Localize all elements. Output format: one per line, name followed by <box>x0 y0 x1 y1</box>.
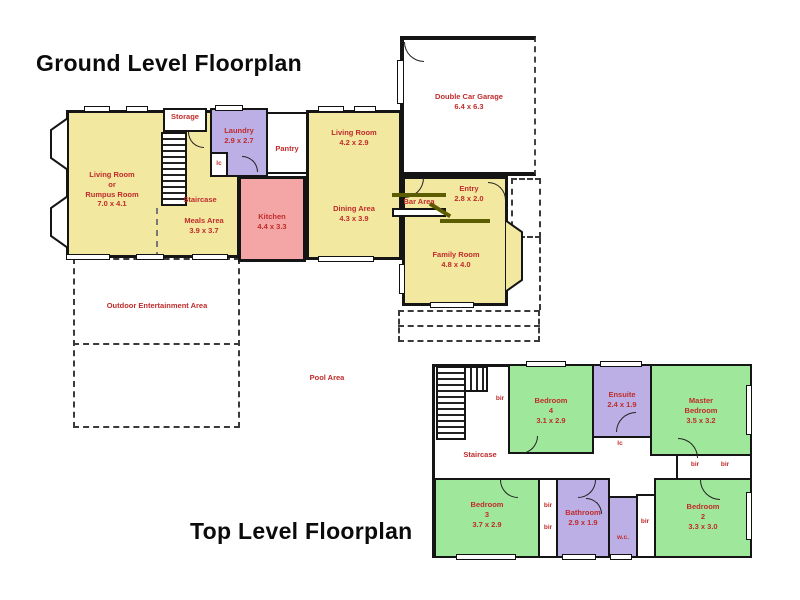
laundry-dims: 2.9 x 2.7 <box>210 136 268 146</box>
ground-level-title: Ground Level Floorplan <box>36 50 356 77</box>
outdoor-divider-line <box>73 343 240 345</box>
bay-window-right <box>505 218 529 296</box>
bedroom2-label: Bedroom 2 3.3 x 3.0 <box>654 502 752 531</box>
ground-lc-text: lc <box>209 160 229 168</box>
master-line2: Bedroom <box>650 406 752 416</box>
rumpus-line3: Rumpus Room <box>66 190 158 200</box>
window <box>136 254 164 260</box>
bedroom3-label: Bedroom 3 3.7 x 2.9 <box>434 500 540 529</box>
top-lc-label: lc <box>608 440 632 448</box>
rear-verandah-line <box>398 325 540 327</box>
window <box>610 554 632 560</box>
ensuite-dims: 2.4 x 1.9 <box>592 400 652 410</box>
living-room-label: Living Room 4.2 x 2.9 <box>306 128 402 148</box>
storage-label: Storage <box>163 112 207 122</box>
living-name: Living Room <box>306 128 402 138</box>
outdoor-area-label: Outdoor Entertainment Area <box>80 301 234 311</box>
pool-name: Pool Area <box>297 373 357 383</box>
meals-name: Meals Area <box>168 216 240 226</box>
window <box>456 554 516 560</box>
bedroom2-line1: Bedroom <box>654 502 752 512</box>
pantry-label: Pantry <box>266 144 308 154</box>
bar-counter-edge <box>440 219 490 223</box>
bathroom-name: Bathroom <box>556 508 610 518</box>
living-dims: 4.2 x 2.9 <box>306 138 402 148</box>
bedroom4-line1: Bedroom <box>508 396 594 406</box>
bedroom4-label: Bedroom 4 3.1 x 2.9 <box>508 396 594 425</box>
window <box>215 105 243 111</box>
bar-area-label: Bar Area <box>392 197 446 207</box>
window <box>600 361 642 367</box>
top-lc-text: lc <box>608 440 632 448</box>
top-staircase-label: Staircase <box>450 450 510 460</box>
bir-label: bir <box>710 461 740 469</box>
bedroom3-robe-strip <box>538 478 558 558</box>
ground-staircase-text: Staircase <box>168 195 232 205</box>
bir-label: bir <box>490 395 510 403</box>
top-staircase-landing <box>464 366 488 392</box>
window <box>84 106 110 112</box>
meals-area-label: Meals Area 3.9 x 3.7 <box>168 216 240 236</box>
bir-text: bir <box>680 461 710 469</box>
bir-label: bir <box>680 461 710 469</box>
rumpus-room-label: Living Room or Rumpus Room 7.0 x 4.1 <box>66 170 158 209</box>
window <box>397 60 404 104</box>
top-staircase-text: Staircase <box>450 450 510 460</box>
bay-window-left <box>46 114 68 254</box>
bir-text: bir <box>710 461 740 469</box>
side-boundary-line <box>539 238 541 310</box>
window <box>526 361 566 367</box>
rumpus-line2: or <box>66 180 158 190</box>
bathroom-label: Bathroom 2.9 x 1.9 <box>556 508 610 528</box>
ensuite-label: Ensuite 2.4 x 1.9 <box>592 390 652 410</box>
bedroom2-line2: 2 <box>654 512 752 522</box>
pool-area-label: Pool Area <box>297 373 357 383</box>
dining-area-label: Dining Area 4.3 x 3.9 <box>310 204 398 224</box>
window <box>399 264 405 294</box>
window <box>66 254 110 260</box>
ensuite-name: Ensuite <box>592 390 652 400</box>
rumpus-line1: Living Room <box>66 170 158 180</box>
dining-name: Dining Area <box>310 204 398 214</box>
bathroom-dims: 2.9 x 1.9 <box>556 518 610 528</box>
meals-dims: 3.9 x 3.7 <box>168 226 240 236</box>
wc-label: w.c. <box>608 534 638 542</box>
rumpus-dims: 7.0 x 4.1 <box>66 199 158 209</box>
family-room-label: Family Room 4.8 x 4.0 <box>408 250 504 270</box>
family-dims: 4.8 x 4.0 <box>408 260 504 270</box>
top-level-title: Top Level Floorplan <box>190 518 430 545</box>
wc-text: w.c. <box>608 534 638 542</box>
bar-name: Bar Area <box>392 197 446 207</box>
laundry-name: Laundry <box>210 126 268 136</box>
bedroom3-line1: Bedroom <box>434 500 540 510</box>
ground-lc-label: lc <box>209 160 229 168</box>
rumpus-meals-divider <box>156 208 158 258</box>
window <box>318 106 344 112</box>
garage-label: Double Car Garage 6.4 x 6.3 <box>416 92 522 112</box>
window <box>430 302 474 308</box>
master-dims: 3.5 x 3.2 <box>650 416 752 426</box>
window <box>126 106 148 112</box>
bedroom4-line2: 4 <box>508 406 594 416</box>
family-name: Family Room <box>408 250 504 260</box>
floorplan-canvas: Ground Level Floorplan <box>0 0 800 600</box>
entry-label: Entry 2.8 x 2.0 <box>440 184 498 204</box>
entry-dims: 2.8 x 2.0 <box>440 194 498 204</box>
garage-dims: 6.4 x 6.3 <box>416 102 522 112</box>
wc-room <box>608 496 638 558</box>
window <box>192 254 228 260</box>
ground-staircase-label: Staircase <box>168 195 232 205</box>
bedroom3-line2: 3 <box>434 510 540 520</box>
bedroom2-dims: 3.3 x 3.0 <box>654 522 752 532</box>
bir-text: bir <box>490 395 510 403</box>
outdoor-name: Outdoor Entertainment Area <box>80 301 234 311</box>
laundry-label: Laundry 2.9 x 2.7 <box>210 126 268 146</box>
pantry-name: Pantry <box>266 144 308 154</box>
garage-name: Double Car Garage <box>416 92 522 102</box>
dining-dims: 4.3 x 3.9 <box>310 214 398 224</box>
kitchen-name: Kitchen <box>240 212 304 222</box>
master-line1: Master <box>650 396 752 406</box>
window <box>354 106 376 112</box>
top-staircase-flight <box>436 366 466 440</box>
bedroom3-dims: 3.7 x 2.9 <box>434 520 540 530</box>
storage-name: Storage <box>163 112 207 122</box>
pantry-room <box>266 112 308 174</box>
master-bedroom-label: Master Bedroom 3.5 x 3.2 <box>650 396 752 425</box>
window <box>562 554 596 560</box>
kitchen-dims: 4.4 x 3.3 <box>240 222 304 232</box>
window <box>318 256 374 262</box>
bedroom4-dims: 3.1 x 2.9 <box>508 416 594 426</box>
entry-name: Entry <box>440 184 498 194</box>
kitchen-label: Kitchen 4.4 x 3.3 <box>240 212 304 232</box>
